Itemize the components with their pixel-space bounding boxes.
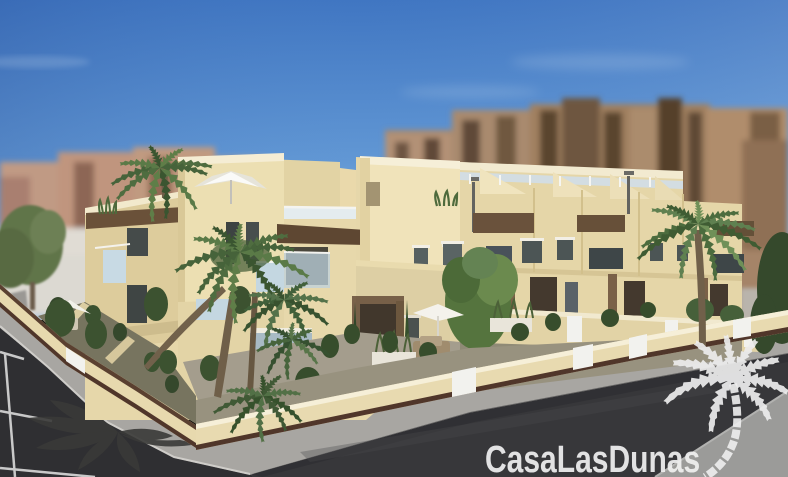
svg-text:CasaLasDunas: CasaLasDunas [485, 439, 700, 477]
